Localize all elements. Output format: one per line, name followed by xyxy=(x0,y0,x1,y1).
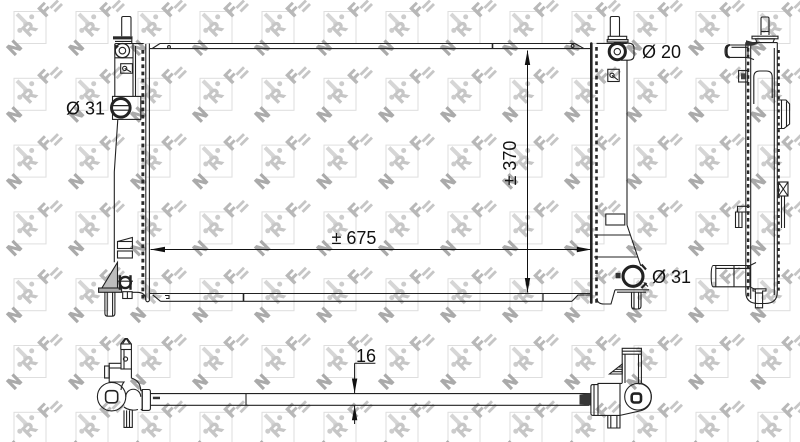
svg-text:± 370: ± 370 xyxy=(500,141,520,186)
svg-text:Ø 31: Ø 31 xyxy=(66,99,105,119)
svg-text:Ø 20: Ø 20 xyxy=(642,42,681,62)
svg-text:16: 16 xyxy=(356,346,376,366)
svg-text:± 675: ± 675 xyxy=(332,228,377,248)
svg-text:Ø 31: Ø 31 xyxy=(652,267,691,287)
